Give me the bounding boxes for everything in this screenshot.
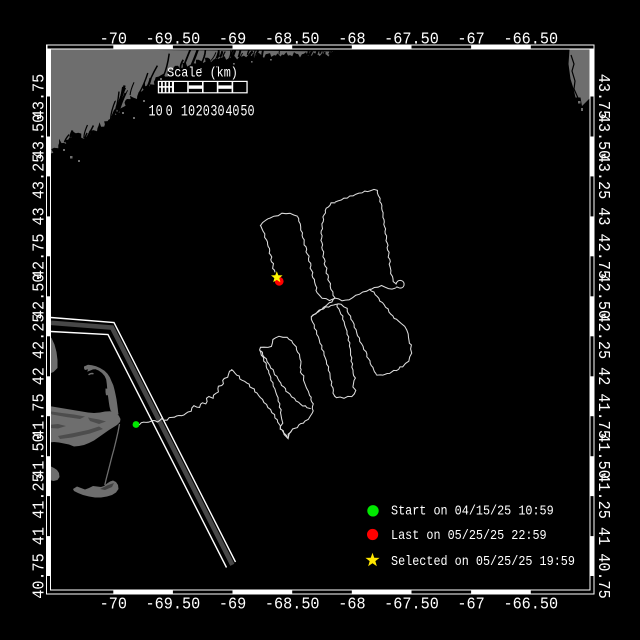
svg-text:-68: -68 [338,30,365,49]
svg-text:50: 50 [240,103,254,121]
svg-text:43.50: 43.50 [30,114,49,160]
svg-text:10: 10 [181,103,195,121]
svg-text:-67.50: -67.50 [384,30,439,49]
svg-text:Scale (km): Scale (km) [167,65,238,81]
svg-text:10: 10 [149,103,163,121]
svg-text:-66.50: -66.50 [503,595,558,614]
svg-text:43.50: 43.50 [594,114,613,160]
svg-text:41.75: 41.75 [30,393,49,439]
svg-text:42.75: 42.75 [30,234,49,280]
svg-text:-68.50: -68.50 [265,30,320,49]
svg-text:41.75: 41.75 [594,393,613,439]
svg-text:42: 42 [30,367,49,385]
svg-text:-68.50: -68.50 [265,595,320,614]
svg-text:-69.50: -69.50 [146,30,201,49]
svg-text:43.75: 43.75 [30,74,49,120]
svg-text:40.75: 40.75 [594,553,613,599]
svg-text:-67: -67 [457,30,484,49]
svg-text:43: 43 [30,207,49,225]
svg-text:41: 41 [30,527,49,545]
svg-text:40.75: 40.75 [30,553,49,599]
svg-text:41.50: 41.50 [594,433,613,479]
svg-text:-68: -68 [338,595,365,614]
svg-text:43.25: 43.25 [30,154,49,200]
svg-text:-66.50: -66.50 [503,30,558,49]
svg-text:41.25: 41.25 [30,473,49,519]
svg-text:0: 0 [166,103,173,121]
svg-text:Start on 04/15/25 10:59: Start on 04/15/25 10:59 [391,503,554,519]
svg-text:42.75: 42.75 [594,234,613,280]
svg-text:-70: -70 [100,595,127,614]
svg-text:40: 40 [225,103,239,121]
svg-text:-69: -69 [219,30,246,49]
svg-text:-67.50: -67.50 [384,595,439,614]
svg-text:43: 43 [594,207,613,225]
svg-text:43.25: 43.25 [594,154,613,200]
svg-text:20: 20 [196,103,210,121]
svg-text:42.25: 42.25 [30,314,49,360]
svg-text:-69: -69 [219,595,246,614]
svg-text:41: 41 [594,527,613,545]
svg-text:41.25: 41.25 [594,473,613,519]
svg-text:42: 42 [594,367,613,385]
svg-text:30: 30 [210,103,224,121]
svg-text:43.75: 43.75 [594,74,613,120]
svg-text:-67: -67 [457,595,484,614]
svg-text:-69.50: -69.50 [146,595,201,614]
svg-text:Last on 05/25/25 22:59: Last on 05/25/25 22:59 [391,527,547,543]
svg-text:-70: -70 [100,30,127,49]
svg-text:Selected on 05/25/25 19:59: Selected on 05/25/25 19:59 [391,553,575,569]
svg-text:42.50: 42.50 [594,274,613,320]
svg-text:41.50: 41.50 [30,433,49,479]
svg-text:42.50: 42.50 [30,274,49,320]
svg-text:42.25: 42.25 [594,314,613,360]
